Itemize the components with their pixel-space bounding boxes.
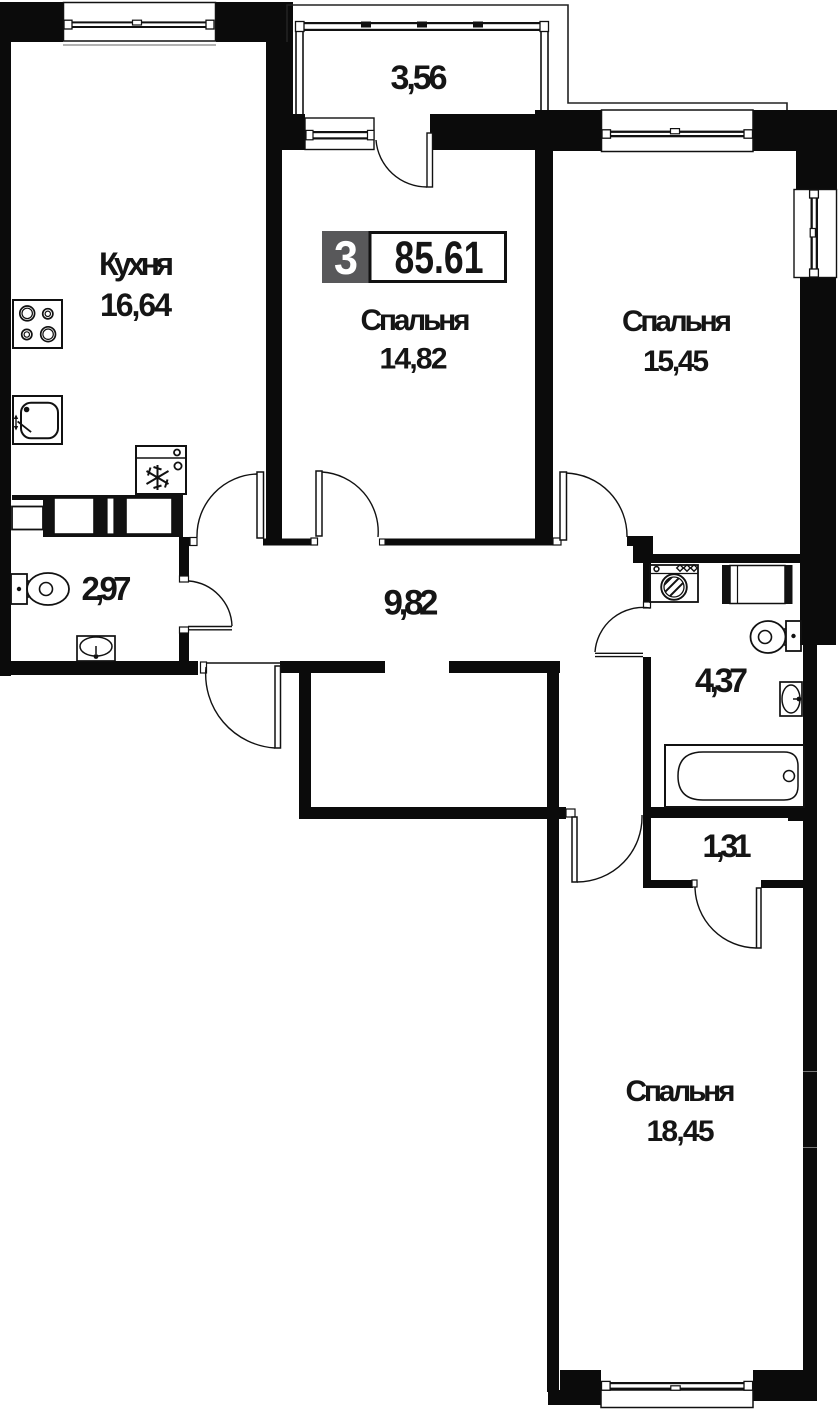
svg-text:Спальня: Спальня bbox=[361, 304, 471, 337]
svg-text:3: 3 bbox=[334, 231, 358, 284]
svg-text:Кухня: Кухня bbox=[99, 246, 174, 282]
svg-text:18,45: 18,45 bbox=[647, 1115, 715, 1148]
svg-text:15,45: 15,45 bbox=[643, 345, 709, 378]
svg-text:9,82: 9,82 bbox=[384, 584, 439, 623]
svg-text:85.61: 85.61 bbox=[395, 232, 484, 283]
svg-text:Спальня: Спальня bbox=[626, 1075, 736, 1108]
svg-text:4,37: 4,37 bbox=[695, 662, 748, 700]
svg-text:3,56: 3,56 bbox=[391, 59, 448, 97]
svg-text:14,82: 14,82 bbox=[380, 343, 448, 376]
svg-text:16,64: 16,64 bbox=[100, 287, 172, 323]
svg-text:1,31: 1,31 bbox=[703, 828, 752, 864]
svg-text:Спальня: Спальня bbox=[622, 305, 732, 338]
svg-text:2,97: 2,97 bbox=[82, 570, 132, 607]
